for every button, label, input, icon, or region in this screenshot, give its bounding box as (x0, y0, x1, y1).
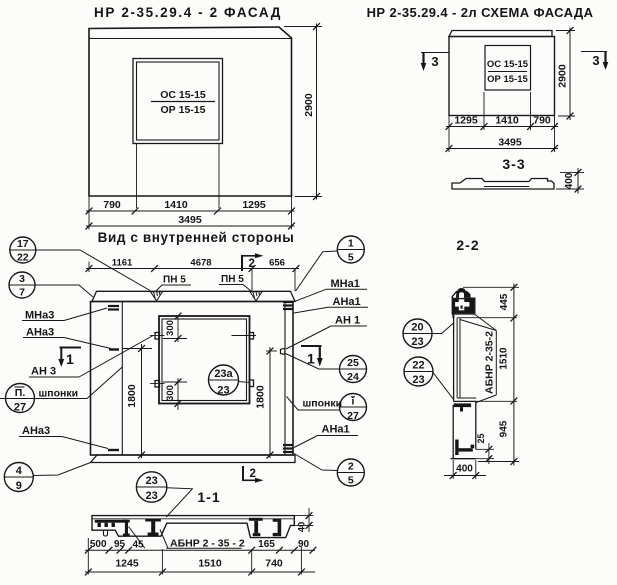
svg-text:1: 1 (348, 238, 354, 250)
svg-text:2900: 2900 (557, 64, 569, 88)
svg-text:300: 300 (165, 320, 176, 336)
svg-text:22: 22 (412, 360, 424, 372)
svg-text:ПН 5: ПН 5 (163, 275, 186, 286)
svg-text:ОР 15-15: ОР 15-15 (161, 104, 206, 116)
svg-text:40: 40 (297, 522, 308, 533)
svg-text:АН 1: АН 1 (335, 315, 360, 327)
svg-text:i: i (352, 396, 355, 408)
svg-text:1800: 1800 (126, 384, 138, 408)
svg-text:23: 23 (217, 385, 229, 397)
svg-text:95: 95 (114, 539, 126, 550)
svg-text:27: 27 (14, 402, 26, 414)
svg-text:1245: 1245 (115, 558, 139, 570)
svg-text:300: 300 (165, 385, 176, 401)
svg-text:МНа1: МНа1 (331, 278, 360, 290)
svg-text:400: 400 (456, 464, 473, 475)
svg-text:шпонки: шпонки (39, 388, 79, 400)
svg-text:656: 656 (269, 258, 285, 269)
svg-text:НР 2-35.29.4 - 2л СХЕМА ФАСАД: НР 2-35.29.4 - 2л СХЕМА ФАСАДА (367, 5, 594, 20)
svg-text:17: 17 (17, 238, 29, 250)
svg-text:9: 9 (16, 480, 22, 492)
svg-text:1161: 1161 (112, 258, 133, 269)
svg-text:3-3: 3-3 (502, 156, 525, 172)
svg-text:400: 400 (564, 172, 575, 189)
svg-text:790: 790 (533, 115, 551, 127)
svg-text:23: 23 (412, 374, 424, 386)
svg-text:4: 4 (16, 465, 23, 477)
svg-text:2: 2 (249, 258, 255, 270)
svg-text:АБНР 2-35-2: АБНР 2-35-2 (484, 331, 496, 394)
svg-text:24: 24 (347, 371, 359, 383)
svg-text:2: 2 (348, 461, 354, 473)
svg-text:3495: 3495 (178, 214, 202, 226)
svg-text:23: 23 (145, 490, 157, 502)
svg-text:ОС 15-15: ОС 15-15 (160, 89, 206, 101)
svg-text:АБНР 2 - 35 - 2: АБНР 2 - 35 - 2 (170, 537, 245, 549)
svg-text:Вид с внутренней стороны: Вид с внутренней стороны (98, 230, 295, 245)
svg-text:1295: 1295 (242, 199, 266, 211)
svg-text:3: 3 (19, 273, 25, 285)
svg-text:АН 3: АН 3 (31, 366, 56, 378)
svg-text:3: 3 (592, 53, 599, 68)
svg-text:23: 23 (145, 475, 157, 487)
svg-text:500: 500 (90, 539, 107, 550)
svg-text:НР 2-35.29.4 - 2 ФАСАД: НР 2-35.29.4 - 2 ФАСАД (94, 5, 282, 20)
svg-text:22: 22 (17, 252, 29, 264)
svg-text:1-1: 1-1 (197, 489, 220, 505)
svg-text:1510: 1510 (198, 558, 222, 570)
svg-text:1410: 1410 (495, 115, 519, 127)
svg-text:ОС 15-15: ОС 15-15 (487, 59, 529, 70)
svg-text:740: 740 (265, 558, 283, 570)
svg-text:45: 45 (132, 539, 144, 550)
svg-text:3: 3 (431, 54, 438, 69)
svg-text:АНа1: АНа1 (333, 296, 361, 308)
svg-text:АНа3: АНа3 (26, 327, 54, 339)
svg-text:1510: 1510 (499, 347, 510, 370)
svg-text:165: 165 (258, 539, 275, 550)
svg-text:790: 790 (103, 199, 121, 211)
svg-text:1800: 1800 (255, 385, 267, 409)
svg-text:25: 25 (476, 433, 486, 443)
svg-text:25: 25 (347, 357, 359, 369)
svg-text:МНа3: МНа3 (25, 310, 54, 322)
svg-text:2900: 2900 (303, 93, 315, 117)
svg-text:АНа1: АНа1 (322, 424, 350, 436)
svg-text:ОР 15-15: ОР 15-15 (487, 74, 528, 85)
svg-text:90: 90 (298, 539, 310, 550)
svg-text:3495: 3495 (498, 137, 522, 149)
svg-text:945: 945 (499, 420, 510, 437)
svg-text:23а: 23а (214, 368, 233, 380)
svg-text:ПН 5: ПН 5 (221, 274, 244, 285)
svg-text:2-2: 2-2 (456, 237, 479, 253)
svg-text:АНа3: АНа3 (22, 425, 50, 437)
svg-text:2: 2 (250, 468, 256, 480)
svg-text:1: 1 (66, 351, 74, 367)
svg-text:4678: 4678 (190, 258, 211, 269)
svg-text:П.: П. (15, 387, 26, 399)
svg-text:5: 5 (348, 252, 354, 264)
svg-text:27: 27 (347, 410, 359, 422)
svg-text:1410: 1410 (164, 199, 188, 211)
svg-text:5: 5 (348, 475, 354, 487)
svg-text:445: 445 (499, 293, 510, 310)
svg-text:7: 7 (19, 287, 25, 299)
svg-text:шпонки: шпонки (303, 398, 343, 410)
svg-text:1295: 1295 (454, 115, 478, 127)
svg-text:23: 23 (411, 336, 423, 348)
svg-text:20: 20 (411, 322, 423, 334)
